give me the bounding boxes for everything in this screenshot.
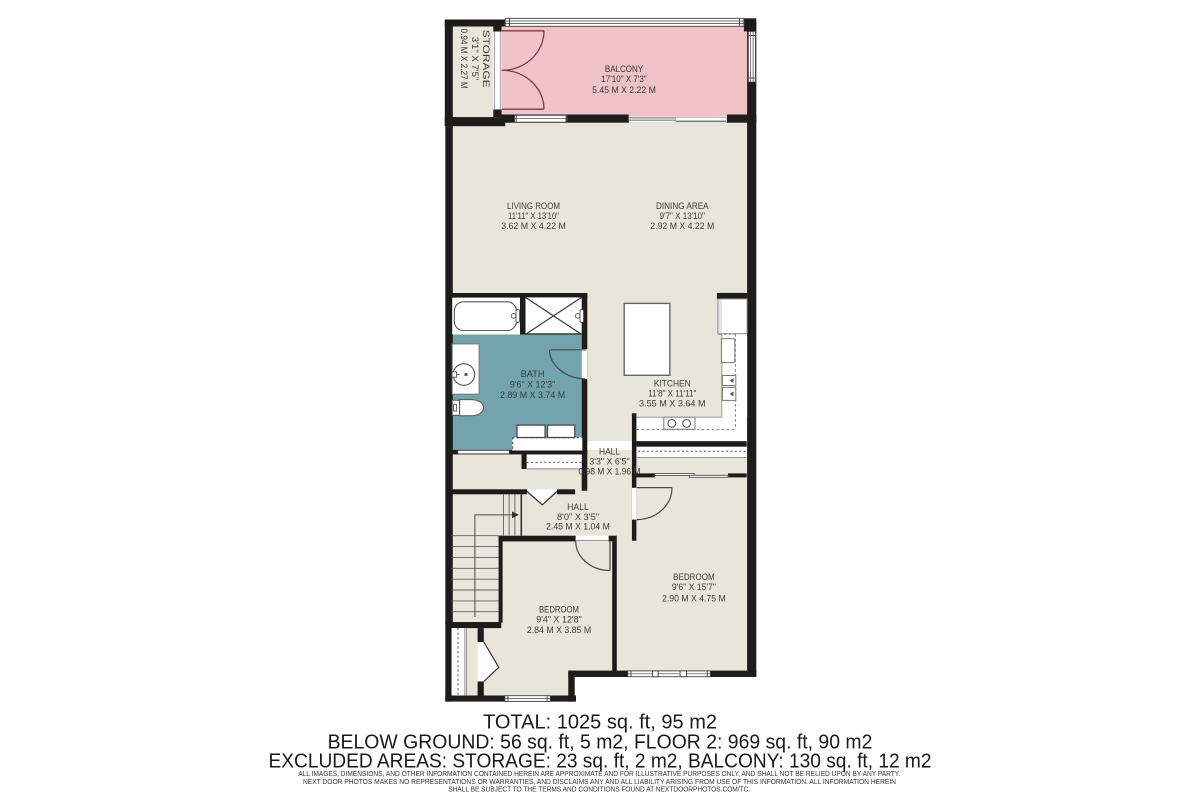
svg-text:2.89 M X 3.74 M: 2.89 M X 3.74 M [500,390,565,400]
svg-text:DINING AREA: DINING AREA [656,201,709,211]
svg-text:SHALL BE SUBJECT TO THE TERMS: SHALL BE SUBJECT TO THE TERMS AND CONDIT… [448,785,750,794]
svg-text:HALL: HALL [599,447,620,457]
svg-text:0.98 M X 1.96 M: 0.98 M X 1.96 M [578,466,640,476]
svg-text:BEDROOM: BEDROOM [673,572,715,582]
svg-text:STORAGE: STORAGE [481,30,491,88]
svg-text:BATH: BATH [521,369,545,379]
svg-text:9'6" X 12'3": 9'6" X 12'3" [510,379,555,389]
svg-text:8'0" X 3'5": 8'0" X 3'5" [557,512,599,522]
svg-text:5.45 M X 2.22 M: 5.45 M X 2.22 M [592,85,656,95]
svg-text:11'8" X 11'11": 11'8" X 11'11" [648,388,696,398]
svg-text:3.55 M X 3.64 M: 3.55 M X 3.64 M [639,398,706,408]
svg-text:HALL: HALL [567,502,589,512]
svg-text:2.45 M X 1.04 M: 2.45 M X 1.04 M [546,522,610,532]
svg-text:9'6" X 15'7": 9'6" X 15'7" [672,582,716,592]
svg-text:2.92 M X 4.22 M: 2.92 M X 4.22 M [650,221,714,231]
svg-text:3'3" X 6'5": 3'3" X 6'5" [589,456,629,466]
svg-text:KITCHEN: KITCHEN [654,379,691,389]
svg-text:17'10" X 7'3": 17'10" X 7'3" [601,74,646,84]
svg-text:2.90 M X 4.75 M: 2.90 M X 4.75 M [662,594,726,604]
svg-text:BALCONY: BALCONY [605,64,643,74]
svg-text:9'4" X 12'8": 9'4" X 12'8" [536,614,582,624]
svg-text:BEDROOM: BEDROOM [539,604,579,614]
svg-text:11'11" X 13'10": 11'11" X 13'10" [508,211,559,221]
svg-text:9'7" X 13'10": 9'7" X 13'10" [660,211,705,221]
svg-text:2.84 M X 3.85 M: 2.84 M X 3.85 M [527,625,591,635]
svg-text:3'1" X 7'5": 3'1" X 7'5" [470,37,480,81]
svg-text:LIVING ROOM: LIVING ROOM [507,201,560,211]
svg-text:0.94 M X 2.27 M: 0.94 M X 2.27 M [459,28,469,88]
svg-text:3.62 M X 4.22 M: 3.62 M X 4.22 M [501,221,566,231]
